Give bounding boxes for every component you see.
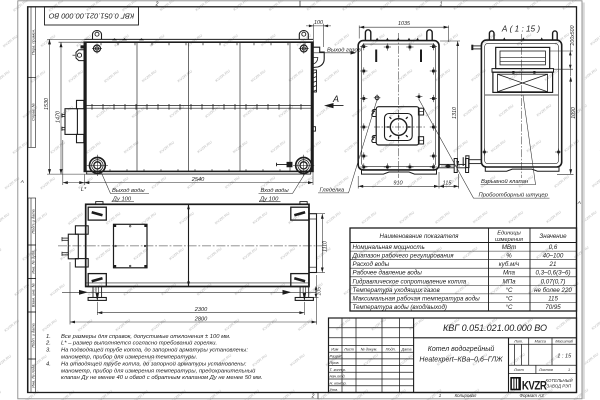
svg-text:2: 2	[155, 2, 159, 8]
svg-text:не более 220: не более 220	[534, 287, 572, 294]
svg-text:куб.м/ч: куб.м/ч	[499, 261, 520, 268]
svg-text:0,07(0,7): 0,07(0,7)	[541, 278, 566, 285]
svg-text:Копировал: Копировал	[455, 393, 477, 398]
svg-text:Heatexpert–КВа–0,6–ГЛЖ: Heatexpert–КВа–0,6–ГЛЖ	[419, 357, 503, 364]
svg-text:манометр, прибор для измерения: манометр, прибор для измерения температу…	[61, 355, 197, 361]
svg-text:Расход воды: Расход воды	[353, 261, 390, 268]
svg-text:115: 115	[548, 295, 558, 302]
svg-text:105: 105	[316, 287, 322, 296]
svg-text:МПа: МПа	[502, 278, 516, 285]
svg-text:измерения: измерения	[495, 237, 523, 243]
svg-text:клапан Ду не менее 40 и обвод: клапан Ду не менее 40 и обвод с обратным…	[61, 375, 262, 381]
svg-text:KVZR: KVZR	[522, 380, 547, 393]
svg-text:ЗАВОД РЭП: ЗАВОД РЭП	[547, 384, 573, 389]
svg-text:2800: 2800	[194, 316, 208, 322]
svg-text:КВГ 0.051.021.00.000 ВО: КВГ 0.051.021.00.000 ВО	[443, 323, 547, 333]
svg-text:На подводящей трубе котла, до: На подводящей трубе котла, до запорной а…	[61, 347, 248, 354]
svg-text:Ду 100: Ду 100	[259, 196, 279, 202]
svg-text:1.: 1.	[46, 334, 51, 340]
svg-text:Справ. №: Справ. №	[30, 102, 35, 120]
svg-text:70/95: 70/95	[545, 304, 561, 311]
svg-text:L* – размер выполняется соглас: L* – размер выполняется согласно требова…	[61, 340, 217, 347]
svg-text:Гидравлическое сопротивление к: Гидравлическое сопротивление котла	[353, 278, 467, 285]
svg-text:Гляделка: Гляделка	[320, 187, 346, 193]
svg-text:1090: 1090	[571, 107, 577, 119]
svg-text:А: А	[332, 94, 339, 104]
svg-text:1 : 15: 1 : 15	[557, 354, 572, 360]
svg-text:Лит.: Лит.	[513, 340, 523, 344]
svg-text:100: 100	[314, 20, 323, 26]
svg-text:КОТЕЛЬНЫЙ: КОТЕЛЬНЫЙ	[546, 378, 574, 383]
svg-text:Пробоотборный штуцер: Пробоотборный штуцер	[479, 192, 549, 199]
svg-text:2300: 2300	[194, 307, 208, 313]
svg-text:Значение: Значение	[539, 233, 567, 240]
svg-text:1: 1	[440, 2, 443, 8]
svg-text:°С: °С	[506, 295, 513, 302]
svg-text:Температура воды (вход/выход): Температура воды (вход/выход)	[353, 304, 447, 311]
svg-text:Листов: Листов	[538, 368, 553, 372]
svg-text:Мпа: Мпа	[503, 270, 516, 277]
svg-text:4.: 4.	[46, 361, 51, 367]
svg-text:Взрывной клапан: Взрывной клапан	[481, 178, 529, 185]
svg-text:2: 2	[311, 394, 315, 400]
svg-text:Формат А3: Формат А3	[519, 393, 544, 398]
svg-text:Диапазон рабочего регулировани: Диапазон рабочего регулирования	[352, 253, 455, 260]
svg-text:КВГ 0.051.021.00.000 ВО: КВГ 0.051.021.00.000 ВО	[49, 11, 135, 20]
svg-text:Выход воды: Выход воды	[112, 188, 145, 194]
svg-text:Вход воды: Вход воды	[261, 188, 290, 194]
svg-text:А: А	[577, 200, 581, 205]
svg-text:1110: 1110	[323, 241, 329, 252]
svg-text:40–100: 40–100	[543, 253, 564, 260]
svg-text:Т. контр.: Т. контр.	[330, 368, 346, 372]
svg-text:Утв.: Утв.	[330, 388, 339, 392]
svg-text:Максимальная рабочая температу: Максимальная рабочая температура воды	[353, 295, 481, 302]
svg-text:Нач.отд.: Нач.отд.	[330, 375, 346, 379]
svg-text:1530: 1530	[44, 98, 50, 110]
svg-text:1: 1	[568, 368, 570, 372]
svg-text:Перв. примен.: Перв. примен.	[30, 29, 35, 55]
svg-text:%: %	[506, 253, 512, 260]
svg-text:Инв. № дубл.: Инв. № дубл.	[30, 250, 35, 274]
svg-text:Пров.: Пров.	[330, 361, 340, 365]
svg-text:200х500: 200х500	[570, 25, 576, 46]
svg-text:L*: L*	[81, 187, 87, 193]
svg-text:Изм: Изм	[331, 348, 338, 352]
svg-text:Все размеры для справок, допус: Все размеры для справок, допустимые откл…	[61, 334, 231, 340]
svg-text:21: 21	[549, 261, 557, 268]
svg-text:Температура уходящих газов: Температура уходящих газов	[353, 287, 441, 294]
svg-text:Масштаб: Масштаб	[555, 340, 574, 344]
svg-text:3.: 3.	[46, 348, 51, 354]
svg-text:Единицы: Единицы	[497, 231, 520, 237]
svg-text:№ докум.: № докум.	[361, 348, 378, 352]
svg-text:0,6: 0,6	[549, 244, 558, 251]
svg-text:Инв. № подл.: Инв. № подл.	[30, 364, 35, 388]
svg-text:1470: 1470	[56, 111, 62, 123]
svg-text:А: А	[20, 179, 24, 184]
svg-text:°С: °С	[506, 304, 513, 311]
svg-text:910: 910	[393, 180, 403, 186]
svg-text:Дата: Дата	[400, 348, 411, 352]
svg-text:МВт: МВт	[502, 244, 516, 251]
svg-text:2.: 2.	[45, 341, 51, 347]
svg-text:манометр, прибор для измерения: манометр, прибор для измерения температу…	[61, 367, 256, 374]
svg-text:Лист: Лист	[343, 348, 354, 352]
svg-text:Н. контр.: Н. контр.	[330, 381, 347, 385]
svg-text:Подп. и дата: Подп. и дата	[30, 208, 35, 233]
svg-text:Наименование показателя: Наименование показателя	[380, 233, 460, 240]
svg-text:Взам. инв. №: Взам. инв. №	[30, 282, 35, 307]
svg-text:Номинальная мощность: Номинальная мощность	[353, 244, 425, 251]
svg-text:Разраб.: Разраб.	[330, 355, 344, 359]
svg-text:1035: 1035	[398, 21, 411, 27]
svg-text:Рабочее давление воды: Рабочее давление воды	[353, 270, 423, 277]
svg-text:0,3–0,6(3–6): 0,3–0,6(3–6)	[535, 270, 570, 277]
svg-text:2540: 2540	[191, 177, 205, 183]
svg-text:Подп. и дата: Подп. и дата	[30, 322, 35, 347]
svg-text:115: 115	[443, 180, 453, 186]
svg-text:1310: 1310	[452, 107, 458, 119]
svg-text:Масса: Масса	[535, 340, 546, 344]
svg-text:Выход газов: Выход газов	[327, 47, 361, 53]
svg-text:Лист: Лист	[513, 368, 524, 372]
svg-text:На отводящей трубе котла, до з: На отводящей трубе котла, до запорной ар…	[61, 360, 247, 367]
svg-text:°С: °С	[506, 287, 513, 294]
svg-text:Котел водогрейный: Котел водогрейный	[428, 345, 495, 353]
svg-text:А ( 1 : 15 ): А ( 1 : 15 )	[501, 25, 540, 34]
svg-text:Подп.: Подп.	[386, 348, 396, 352]
